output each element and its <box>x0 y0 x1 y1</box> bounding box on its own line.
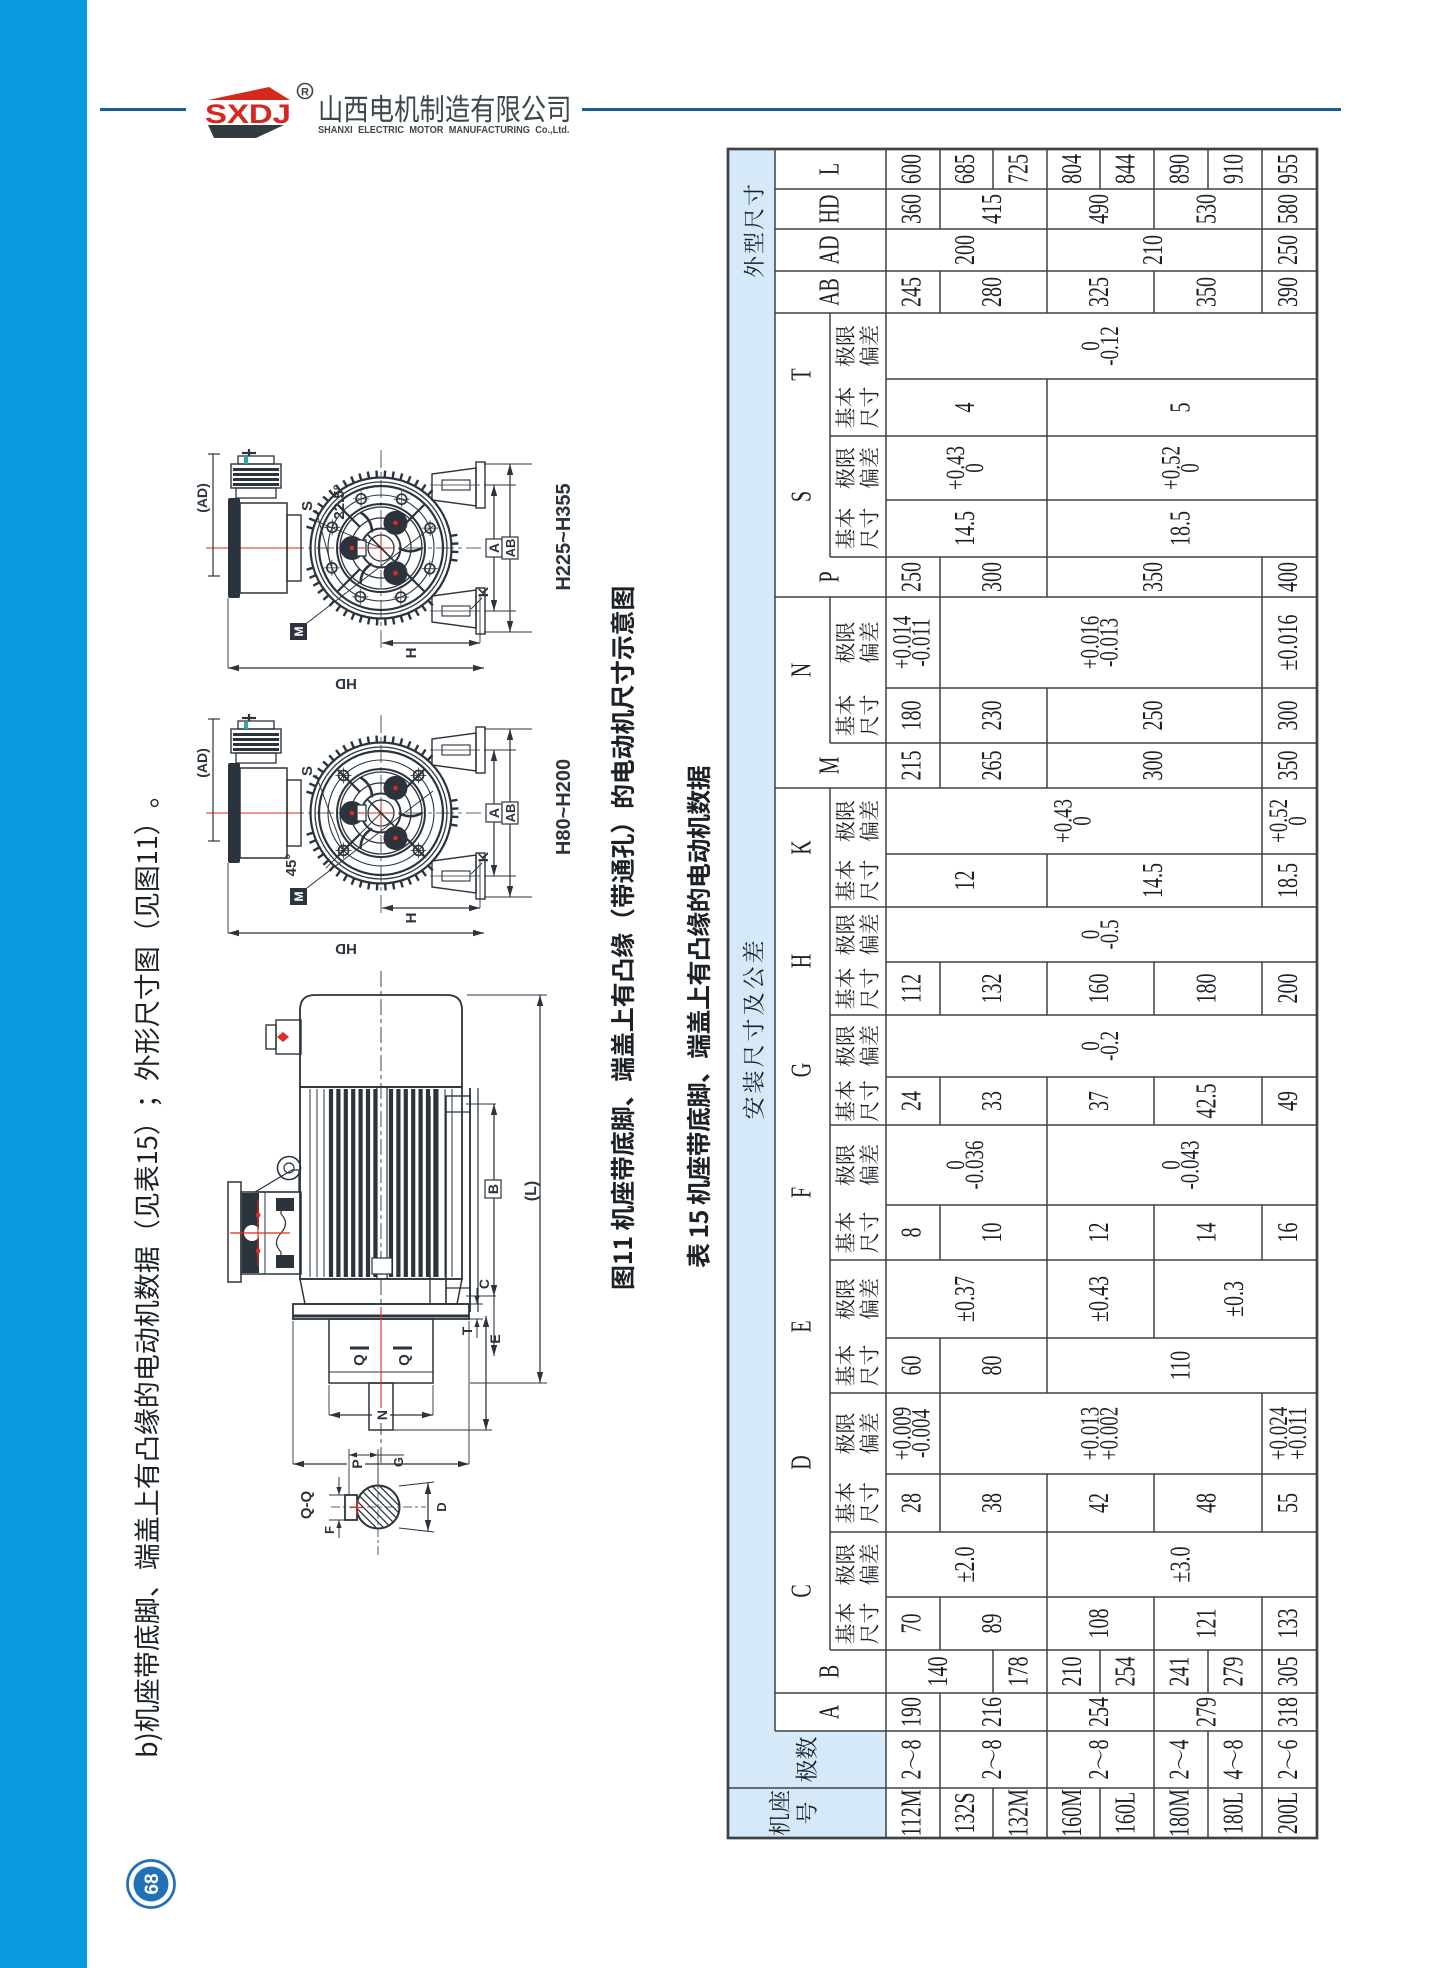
svg-text:33: 33 <box>977 1091 1008 1111</box>
svg-text:0: 0 <box>1283 816 1312 825</box>
svg-text:24: 24 <box>896 1091 927 1111</box>
svg-text:+0.011: +0.011 <box>1283 1407 1312 1460</box>
svg-text:325: 325 <box>1084 277 1115 307</box>
svg-text:68: 68 <box>142 1873 163 1894</box>
svg-text:12: 12 <box>1084 1223 1115 1243</box>
svg-text:200: 200 <box>950 235 981 265</box>
svg-text:Q-Q: Q-Q <box>298 1491 315 1520</box>
svg-text:±0.43: ±0.43 <box>1084 1276 1115 1322</box>
svg-text:215: 215 <box>896 751 927 781</box>
svg-text:-0.004: -0.004 <box>907 1409 936 1458</box>
svg-text:600: 600 <box>896 154 927 184</box>
svg-text:230: 230 <box>977 701 1008 731</box>
svg-text:C: C <box>476 1279 492 1289</box>
svg-text:C: C <box>786 1584 817 1597</box>
svg-text:844: 844 <box>1110 154 1141 184</box>
svg-text:112: 112 <box>896 974 927 1003</box>
svg-text:±0.3: ±0.3 <box>1219 1281 1250 1317</box>
svg-text:K: K <box>786 840 817 855</box>
svg-text:955: 955 <box>1273 154 1304 184</box>
svg-text:F: F <box>786 1187 817 1198</box>
svg-text:400: 400 <box>1273 562 1304 592</box>
svg-text:G: G <box>786 1063 817 1077</box>
svg-text:200: 200 <box>1273 974 1304 1004</box>
svg-text:180M: 180M <box>1164 1789 1195 1837</box>
svg-text:-0.043: -0.043 <box>1176 1140 1205 1189</box>
svg-text:H: H <box>786 954 817 969</box>
svg-text:245: 245 <box>896 277 927 307</box>
svg-text:210: 210 <box>1138 235 1169 265</box>
svg-text:K: K <box>475 852 491 862</box>
svg-text:G: G <box>391 1457 406 1467</box>
svg-text:-0.5: -0.5 <box>1095 919 1124 949</box>
svg-text:A: A <box>814 1705 845 1720</box>
svg-text:37: 37 <box>1084 1091 1115 1111</box>
svg-text:T: T <box>786 368 817 380</box>
svg-text:133: 133 <box>1273 1609 1304 1639</box>
svg-text:350: 350 <box>1191 277 1222 307</box>
svg-text:B: B <box>485 1184 501 1194</box>
svg-text:(L): (L) <box>523 1181 540 1201</box>
svg-text:4: 4 <box>1164 1739 1195 1749</box>
svg-text:AB: AB <box>503 804 518 823</box>
svg-text:M: M <box>292 892 306 902</box>
svg-text:254: 254 <box>1110 1657 1141 1687</box>
svg-text:250: 250 <box>1138 701 1169 731</box>
svg-text:890: 890 <box>1164 154 1195 184</box>
svg-text:S: S <box>299 501 316 511</box>
svg-text:279: 279 <box>1191 1697 1222 1727</box>
svg-text:216: 216 <box>977 1697 1008 1727</box>
svg-text:P: P <box>349 1459 365 1468</box>
svg-text:M: M <box>292 627 306 637</box>
svg-text:18.5: 18.5 <box>1273 863 1304 898</box>
svg-text:AB: AB <box>503 539 518 558</box>
svg-text:685: 685 <box>950 154 981 184</box>
svg-text:±2.0: ±2.0 <box>950 1547 981 1583</box>
svg-text:AD: AD <box>814 236 845 265</box>
svg-text:E: E <box>786 1320 817 1332</box>
svg-text:160L: 160L <box>1110 1792 1141 1834</box>
svg-text:B: B <box>814 1665 845 1678</box>
svg-text:A: A <box>486 543 502 553</box>
svg-text:132: 132 <box>977 974 1008 1004</box>
svg-text:318: 318 <box>1273 1697 1304 1727</box>
svg-text:360: 360 <box>896 194 927 224</box>
svg-text:+0.002: +0.002 <box>1095 1407 1124 1460</box>
svg-text:18.5: 18.5 <box>1165 511 1196 546</box>
svg-text:42: 42 <box>1084 1493 1115 1513</box>
svg-text:2: 2 <box>1164 1769 1195 1779</box>
svg-text:580: 580 <box>1273 194 1304 224</box>
svg-text:Q: Q <box>351 1354 368 1366</box>
svg-text:254: 254 <box>1084 1697 1115 1727</box>
svg-text:0: 0 <box>960 463 989 472</box>
svg-text:265: 265 <box>977 751 1008 781</box>
svg-text:241: 241 <box>1164 1657 1195 1687</box>
svg-text:H: H <box>403 648 420 659</box>
svg-text:2: 2 <box>896 1769 927 1779</box>
svg-text:305: 305 <box>1273 1657 1304 1687</box>
svg-text:L: L <box>814 163 845 175</box>
svg-text:8: 8 <box>1084 1739 1115 1749</box>
svg-text:55: 55 <box>1273 1493 1304 1513</box>
svg-text:8: 8 <box>977 1739 1008 1749</box>
svg-text:Q: Q <box>396 1354 413 1366</box>
svg-text:12: 12 <box>950 871 981 891</box>
svg-text:±0.016: ±0.016 <box>1273 615 1304 671</box>
svg-text:D: D <box>786 1455 817 1469</box>
svg-text:4: 4 <box>1218 1769 1249 1779</box>
svg-text:2: 2 <box>977 1769 1008 1779</box>
svg-text:-0.2: -0.2 <box>1095 1031 1124 1061</box>
svg-text:160M: 160M <box>1057 1789 1088 1837</box>
svg-text:279: 279 <box>1218 1657 1249 1687</box>
svg-text:178: 178 <box>1003 1657 1034 1687</box>
svg-text:45°: 45° <box>283 854 300 877</box>
svg-text:±3.0: ±3.0 <box>1165 1547 1196 1583</box>
svg-text:8: 8 <box>896 1227 927 1237</box>
svg-text:10: 10 <box>977 1223 1008 1243</box>
svg-text:F: F <box>322 1526 337 1534</box>
svg-text:70: 70 <box>896 1614 927 1634</box>
svg-text:42.5: 42.5 <box>1191 1084 1222 1119</box>
svg-text:T: T <box>459 1326 475 1335</box>
svg-text:-0.036: -0.036 <box>960 1140 989 1189</box>
svg-text:180: 180 <box>896 701 927 731</box>
svg-text:132S: 132S <box>950 1792 981 1833</box>
svg-text:D: D <box>434 1502 449 1511</box>
svg-text:HD: HD <box>335 940 357 957</box>
svg-text:108: 108 <box>1084 1609 1115 1639</box>
svg-text:16: 16 <box>1273 1223 1304 1243</box>
svg-text:300: 300 <box>1273 701 1304 731</box>
svg-text:N: N <box>374 1410 390 1420</box>
svg-text:±0.37: ±0.37 <box>950 1276 981 1322</box>
svg-text:180: 180 <box>1191 974 1222 1004</box>
svg-text:6: 6 <box>1273 1739 1304 1749</box>
svg-text:E: E <box>487 1334 503 1343</box>
svg-text:804: 804 <box>1057 154 1088 184</box>
svg-text:AB: AB <box>814 278 845 306</box>
svg-text:A: A <box>486 808 502 818</box>
svg-text:-0.011: -0.011 <box>907 618 936 666</box>
svg-text:49: 49 <box>1273 1091 1304 1111</box>
svg-text:HD: HD <box>335 675 357 692</box>
svg-text:5: 5 <box>1165 402 1196 412</box>
svg-text:190: 190 <box>896 1697 927 1727</box>
svg-text:K: K <box>475 587 491 597</box>
svg-text:H: H <box>403 913 420 924</box>
svg-text:14.5: 14.5 <box>950 511 981 546</box>
svg-text:415: 415 <box>977 194 1008 224</box>
svg-text:48: 48 <box>1191 1493 1222 1513</box>
svg-text:490: 490 <box>1084 194 1115 224</box>
svg-text:M: M <box>814 756 845 774</box>
svg-text:22.5°: 22.5° <box>331 484 348 519</box>
svg-text:80: 80 <box>977 1356 1008 1376</box>
svg-text:89: 89 <box>977 1614 1008 1634</box>
svg-text:60: 60 <box>896 1356 927 1376</box>
svg-text:350: 350 <box>1273 751 1304 781</box>
svg-text:(AD): (AD) <box>194 483 210 513</box>
svg-text:200L: 200L <box>1273 1792 1304 1834</box>
svg-text:28: 28 <box>896 1493 927 1513</box>
svg-text:14: 14 <box>1191 1223 1222 1243</box>
svg-text:210: 210 <box>1057 1657 1088 1687</box>
svg-text:S: S <box>786 491 817 502</box>
svg-text:HD: HD <box>814 195 845 224</box>
svg-text:0: 0 <box>1176 463 1205 472</box>
svg-text:(AD): (AD) <box>194 748 210 778</box>
svg-text:38: 38 <box>977 1493 1008 1513</box>
svg-text:H80~H200: H80~H200 <box>553 759 575 855</box>
svg-text:H225~H355: H225~H355 <box>553 483 575 590</box>
svg-text:-0.12: -0.12 <box>1095 326 1124 366</box>
svg-text:910: 910 <box>1218 154 1249 184</box>
svg-text:250: 250 <box>896 562 927 592</box>
svg-text:530: 530 <box>1191 194 1222 224</box>
svg-text:N: N <box>786 663 817 678</box>
svg-text:132M: 132M <box>1003 1789 1034 1837</box>
svg-text:300: 300 <box>1138 751 1169 781</box>
svg-text:280: 280 <box>977 277 1008 307</box>
svg-text:-0.013: -0.013 <box>1095 618 1124 667</box>
svg-text:0: 0 <box>1068 816 1097 825</box>
svg-text:2: 2 <box>1084 1769 1115 1779</box>
svg-text:350: 350 <box>1138 562 1169 592</box>
svg-text:300: 300 <box>977 562 1008 592</box>
svg-text:S: S <box>299 766 316 776</box>
svg-text:180L: 180L <box>1218 1792 1249 1834</box>
svg-text:725: 725 <box>1003 154 1034 184</box>
svg-text:P: P <box>814 571 845 582</box>
svg-text:8: 8 <box>896 1739 927 1749</box>
svg-text:160: 160 <box>1084 974 1115 1004</box>
svg-text:8: 8 <box>1218 1739 1249 1749</box>
svg-text:121: 121 <box>1191 1609 1222 1639</box>
svg-text:110: 110 <box>1165 1351 1196 1380</box>
svg-text:140: 140 <box>923 1657 954 1687</box>
svg-text:250: 250 <box>1273 235 1304 265</box>
svg-text:390: 390 <box>1273 277 1304 307</box>
svg-text:112M: 112M <box>896 1789 927 1836</box>
svg-text:14.5: 14.5 <box>1138 863 1169 898</box>
svg-text:4: 4 <box>950 402 981 412</box>
svg-text:2: 2 <box>1273 1769 1304 1779</box>
